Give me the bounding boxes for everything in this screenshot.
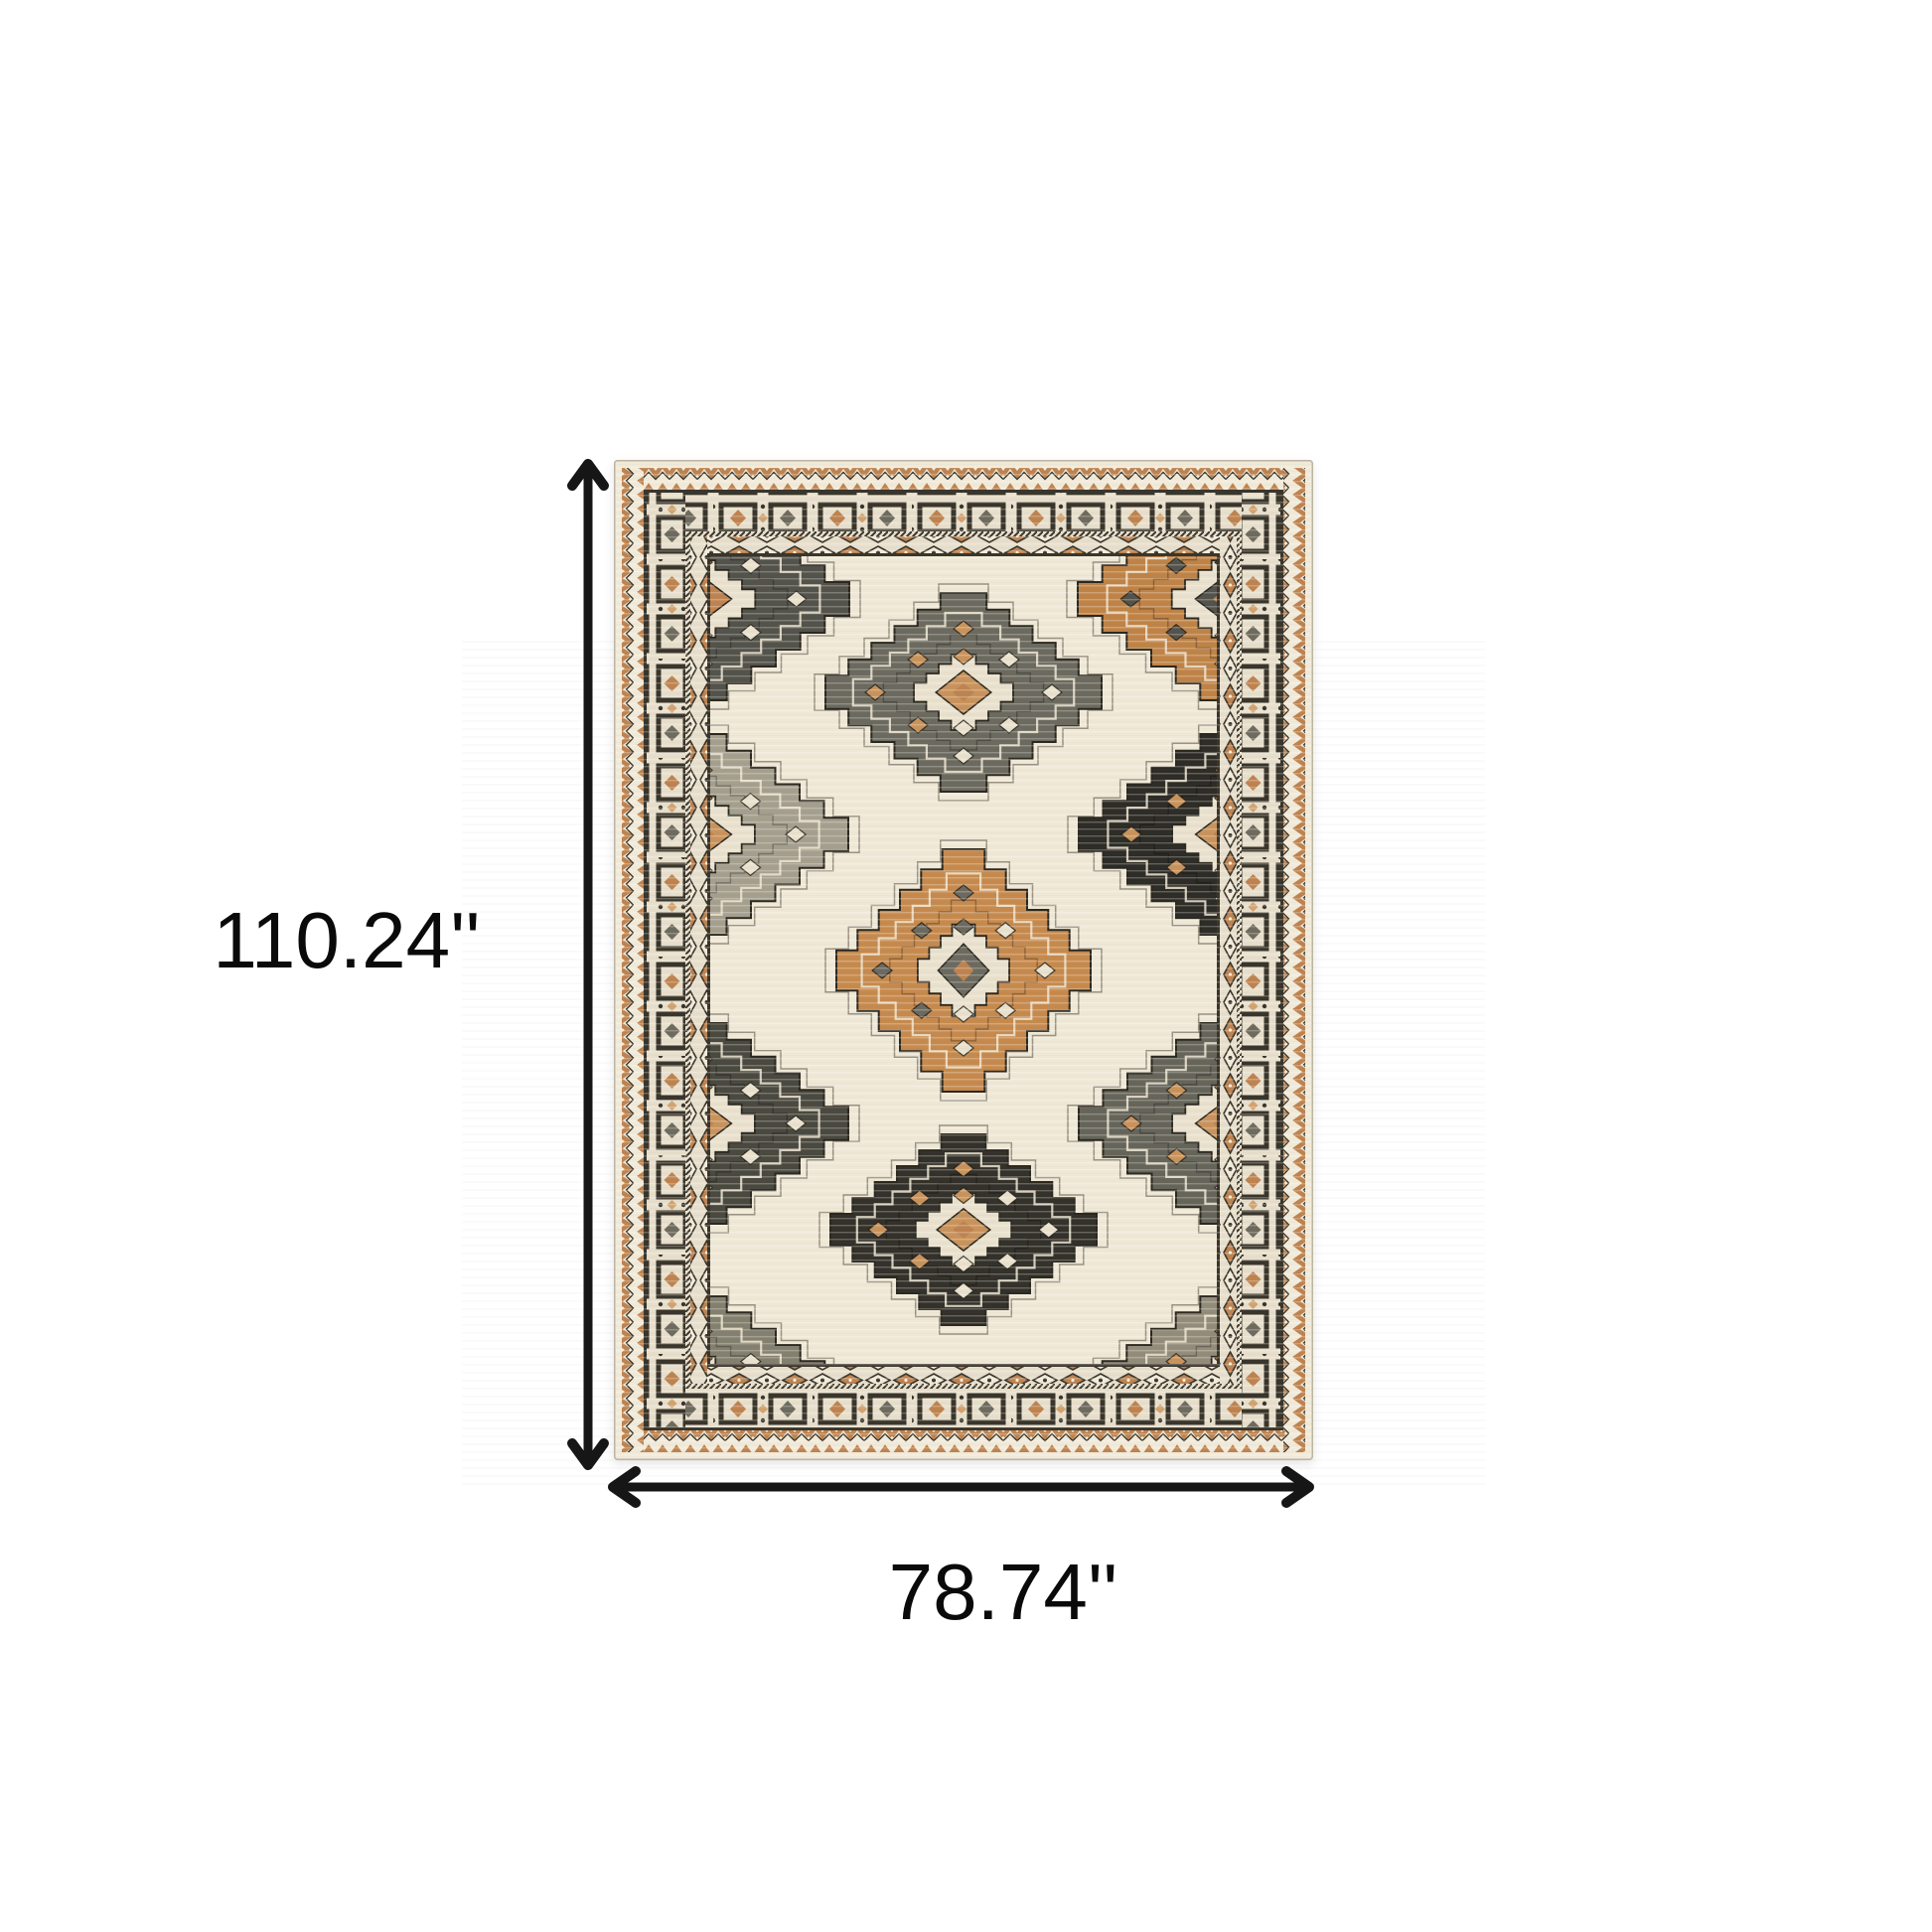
rug-image [614,460,1313,1460]
rug-weave-texture [616,462,1311,1458]
height-arrowhead-top [572,464,604,486]
width-dimension-label: 78.74'' [889,1553,1118,1632]
height-dimension-label: 110.24'' [213,901,480,980]
product-dimension-image: 110.24'' 78.74'' [0,0,1932,1932]
